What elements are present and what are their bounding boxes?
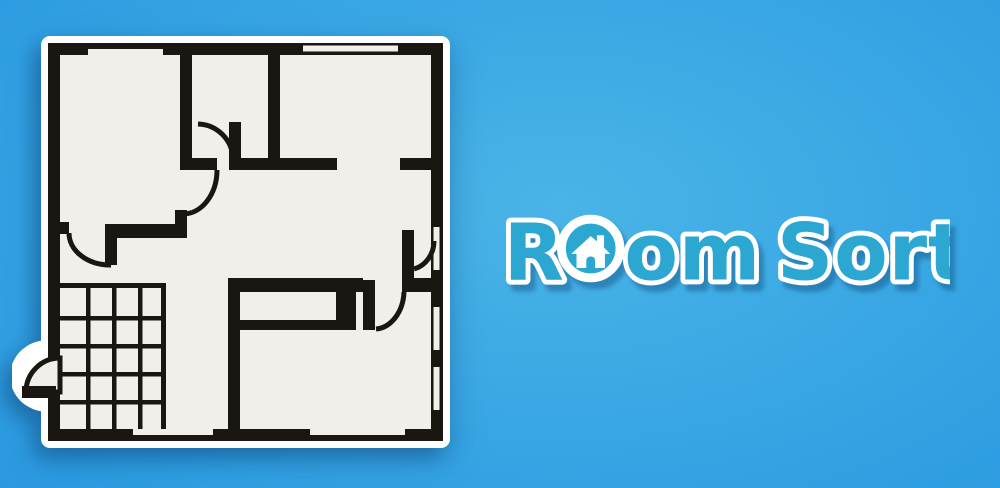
window	[133, 429, 213, 435]
entry-door-leaf	[22, 386, 56, 398]
closet	[240, 282, 356, 330]
window	[434, 307, 440, 350]
logo: R om Sort	[502, 197, 950, 308]
logo-o-house	[561, 219, 620, 278]
window	[88, 49, 163, 55]
logo-text-r: R	[504, 209, 565, 299]
logo-text-om: om	[624, 209, 761, 299]
window	[303, 46, 398, 52]
room-sort-banner: R om Sort	[0, 0, 1000, 488]
window	[310, 429, 405, 435]
window	[434, 367, 440, 410]
floorplan-image	[12, 30, 454, 454]
logo-text-sort: Sort	[777, 209, 950, 299]
